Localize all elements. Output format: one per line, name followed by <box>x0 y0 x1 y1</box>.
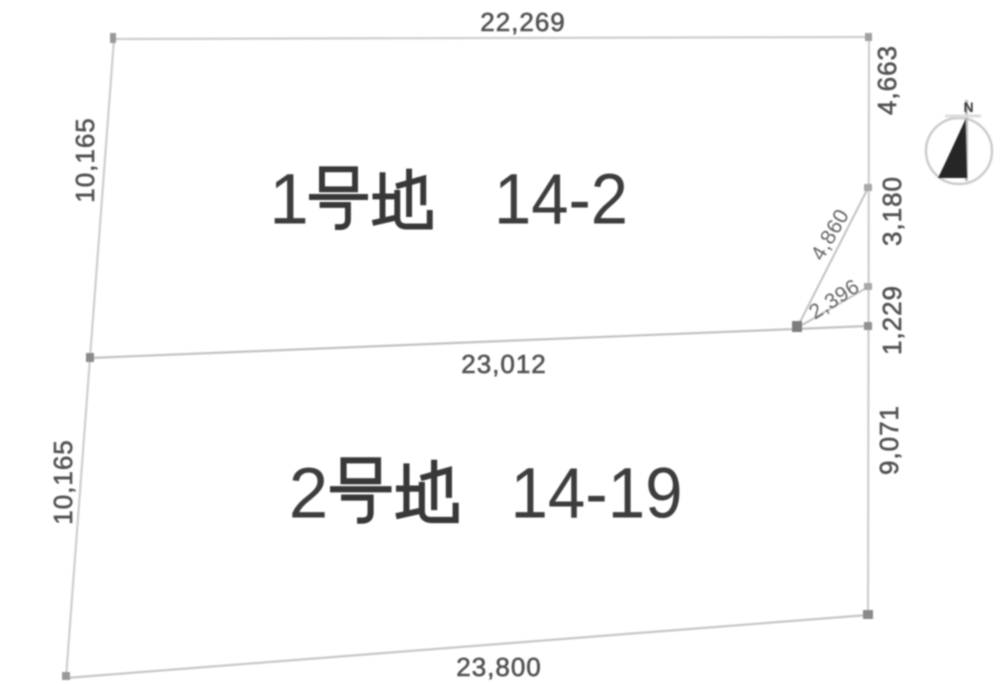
svg-text:2: 2 <box>289 455 329 534</box>
svg-text:1: 1 <box>269 161 309 240</box>
svg-text:N: N <box>964 99 974 115</box>
svg-text:10,165: 10,165 <box>70 117 100 203</box>
svg-text:14-2: 14-2 <box>494 161 628 240</box>
svg-text:3,180: 3,180 <box>877 176 907 246</box>
svg-text:22,269: 22,269 <box>480 7 566 37</box>
svg-text:4,860: 4,860 <box>807 205 854 264</box>
svg-text:23,800: 23,800 <box>456 652 542 682</box>
svg-text:2,396: 2,396 <box>805 275 864 324</box>
svg-text:10,165: 10,165 <box>48 439 78 525</box>
svg-text:9,071: 9,071 <box>874 405 904 475</box>
svg-text:14-19: 14-19 <box>511 455 683 534</box>
svg-text:1,229: 1,229 <box>877 285 907 355</box>
svg-text:4,663: 4,663 <box>872 45 902 115</box>
svg-text:23,012: 23,012 <box>461 349 547 379</box>
